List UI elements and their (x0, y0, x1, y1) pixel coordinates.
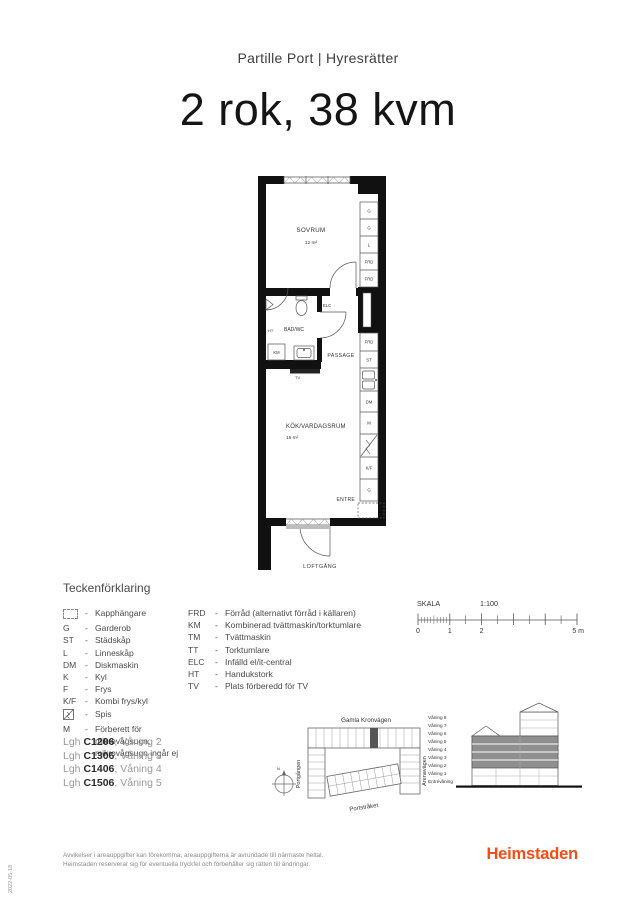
compass-n-label: N (277, 766, 280, 771)
floor-label: Våning 3 (428, 754, 447, 760)
building-elevation: Våning 8 Våning 7 Våning 6 Våning 5 Våni… (426, 700, 586, 808)
closet-label: FRD (365, 277, 374, 282)
legend-item: FRD - Förråd (alternativt förråd i källa… (188, 607, 373, 619)
kapphangare-icon (63, 609, 78, 619)
entry-label: ENTRE (337, 497, 356, 503)
site-map: Gamla Kronvägen Portgången Arenavägen (266, 710, 434, 815)
kitchen-area: 15 m² (286, 435, 299, 441)
closet-label: G (367, 226, 371, 231)
closet-label: FRD (365, 260, 374, 265)
floor-label: Våning 5 (428, 738, 447, 744)
bathroom-label: BAD/WC (284, 327, 304, 333)
shaft (363, 293, 371, 327)
highlighted-unit (370, 728, 378, 748)
apartment-code: C1506 (83, 777, 114, 789)
door-sill (286, 526, 330, 529)
brand-logo: Heimstaden (456, 845, 578, 864)
disclaimer-line1: Avvikelser i areauppgifter kan förekomma… (63, 851, 323, 860)
kitchen-label: KÖK/VARDAGSRUM (286, 423, 346, 430)
scale-tick-0: 0 (416, 628, 420, 635)
legend-item: TM - Tvättmaskin (188, 631, 373, 643)
scale-ratio: 1:100 (480, 599, 498, 608)
legend-item: DM - Diskmaskin (63, 659, 188, 671)
unit-label: K/F (366, 466, 373, 471)
legend-item: ST - Städskåp (63, 634, 188, 646)
closet-label: L (368, 243, 371, 248)
apartment-row: Lgh C1206, Våning 2 (63, 736, 162, 750)
bedroom-window (284, 176, 350, 184)
stove-icon (63, 709, 74, 723)
entry-door-opening (286, 519, 330, 525)
legend-title: Teckenförklaring (63, 581, 150, 595)
floor-label: Entrévåning (428, 778, 453, 784)
floor-label: Våning 7 (428, 722, 447, 728)
page-title: 2 rok, 38 kvm (0, 84, 636, 136)
unit-label: DM (366, 400, 373, 405)
compass-icon (272, 770, 296, 796)
walkway-label: LOFTGÅNG (303, 563, 337, 570)
legend-right-column: FRD - Förråd (alternativt förråd i källa… (188, 607, 373, 692)
km-label: KM (273, 350, 280, 355)
ht-label: HT (268, 328, 274, 333)
legend-item: HT - Handukstork (188, 668, 373, 680)
unit-label: FRD (365, 340, 374, 345)
unit-label: G (367, 488, 371, 493)
closet-label: G (367, 209, 371, 214)
tv-label: TV (295, 375, 300, 380)
street-top-label: Gamla Kronvägen (341, 717, 391, 724)
legend-item: G - Garderob (63, 622, 188, 634)
scale-tick-1: 1 (448, 628, 452, 635)
legend-item: K - Kyl (63, 671, 188, 683)
bedroom-label: SOVRUM (297, 227, 326, 234)
scale-tick-5: 5 m (572, 628, 584, 635)
legend-item: - Spis (63, 708, 188, 723)
floor-label: Våning 4 (428, 746, 447, 752)
apartment-row: Lgh C1306, Våning 3 (63, 750, 162, 764)
apartment-row: Lgh C1406, Våning 4 (63, 763, 162, 777)
legend-item: TV - Plats förberedd för TV (188, 680, 373, 692)
disclaimer-line2: Heimstaden reserverar sig för eventuella… (63, 860, 323, 869)
legend-item: F - Frys (63, 683, 188, 695)
disclaimer: Avvikelser i areauppgifter kan förekomma… (63, 851, 323, 870)
apartment-list: Lgh C1206, Våning 2 Lgh C1306, Våning 3 … (63, 736, 162, 790)
floor-plan: G G L FRD FRD FRD ST DM M (254, 172, 394, 576)
street-bottom-label: Portstråket (349, 802, 379, 813)
unit-label: M (367, 421, 371, 426)
legend-item: TT - Torktumlare (188, 644, 373, 656)
scale-label: SKALA (417, 599, 440, 608)
project-subtitle: Partille Port | Hyresrätter (0, 50, 636, 66)
apartment-code: C1406 (83, 763, 114, 775)
elc-label: ELC (323, 303, 331, 308)
legend-item: ELC - Infälld el/it-central (188, 656, 373, 668)
legend-item: K/F - Kombi frys/kyl (63, 695, 188, 707)
scale-tick-2: 2 (480, 628, 484, 635)
apartment-row: Lgh C1506, Våning 5 (63, 777, 162, 791)
scale-ticks (418, 614, 577, 626)
floor-label: Våning 1 (428, 770, 447, 776)
ground-line (456, 786, 582, 788)
apartment-code: C1206 (83, 736, 114, 748)
bedroom-area: 12 m² (305, 240, 318, 246)
unit-label: ST (366, 358, 372, 363)
doors (266, 262, 356, 556)
floorplan-sheet: { "header": { "project": "Partille Port … (0, 0, 636, 900)
street-left-label: Portgången (295, 760, 302, 788)
walls (258, 176, 386, 570)
legend-item: KM - Kombinerad tvättmaskin/torktumlare (188, 619, 373, 631)
floor-label: Våning 8 (428, 714, 447, 720)
apartment-code: C1306 (83, 750, 114, 762)
tv-bench (290, 369, 320, 374)
passage-label: PASSAGE (327, 353, 354, 359)
print-date: 2022-05-18 (8, 865, 14, 893)
legend-item: L - Linneskåp (63, 647, 188, 659)
floor-label: Våning 6 (428, 730, 447, 736)
legend-item: - Kapphängare (63, 607, 188, 622)
scale-bar: SKALA 1:100 0 1 2 5 m (416, 596, 584, 636)
floor-label: Våning 2 (428, 762, 447, 768)
